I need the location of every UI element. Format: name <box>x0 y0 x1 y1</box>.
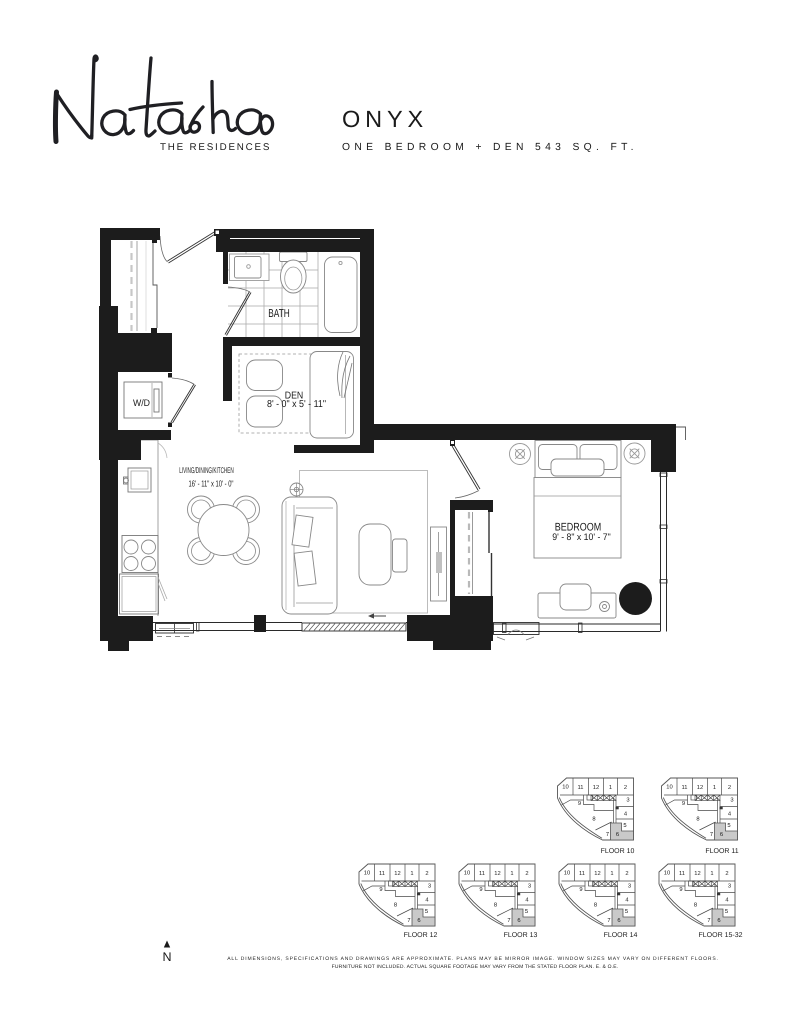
svg-text:N: N <box>162 950 171 964</box>
svg-text:FLOOR 12: FLOOR 12 <box>404 932 438 939</box>
svg-text:16' - 11" x 10' - 0": 16' - 11" x 10' - 0" <box>189 479 234 489</box>
svg-text:BATH: BATH <box>268 308 290 320</box>
svg-text:FLOOR 11: FLOOR 11 <box>705 848 738 855</box>
svg-text:FLOOR 15-32: FLOOR 15-32 <box>699 932 743 939</box>
svg-text:FLOOR 10: FLOOR 10 <box>601 848 635 855</box>
svg-text:8' - 0" x 5' - 11": 8' - 0" x 5' - 11" <box>267 399 326 410</box>
svg-text:ONE BEDROOM + DEN 543 SQ. FT.: ONE BEDROOM + DEN 543 SQ. FT. <box>342 142 638 153</box>
svg-text:FLOOR 13: FLOOR 13 <box>504 932 538 939</box>
svg-text:W/D: W/D <box>133 398 150 409</box>
svg-text:FLOOR 14: FLOOR 14 <box>604 932 638 939</box>
svg-text:9' - 8" x 10' - 7": 9' - 8" x 10' - 7" <box>552 532 611 543</box>
svg-text:FURNITURE NOT INCLUDED. ACTUAL: FURNITURE NOT INCLUDED. ACTUAL SQUARE FO… <box>332 964 619 970</box>
svg-text:LIVING/DINING/KITCHEN: LIVING/DINING/KITCHEN <box>179 465 234 475</box>
svg-text:ONYX: ONYX <box>342 106 428 132</box>
svg-text:THE RESIDENCES: THE RESIDENCES <box>160 142 271 153</box>
svg-text:ALL DIMENSIONS, SPECIFICATIONS: ALL DIMENSIONS, SPECIFICATIONS AND DRAWI… <box>227 956 719 962</box>
